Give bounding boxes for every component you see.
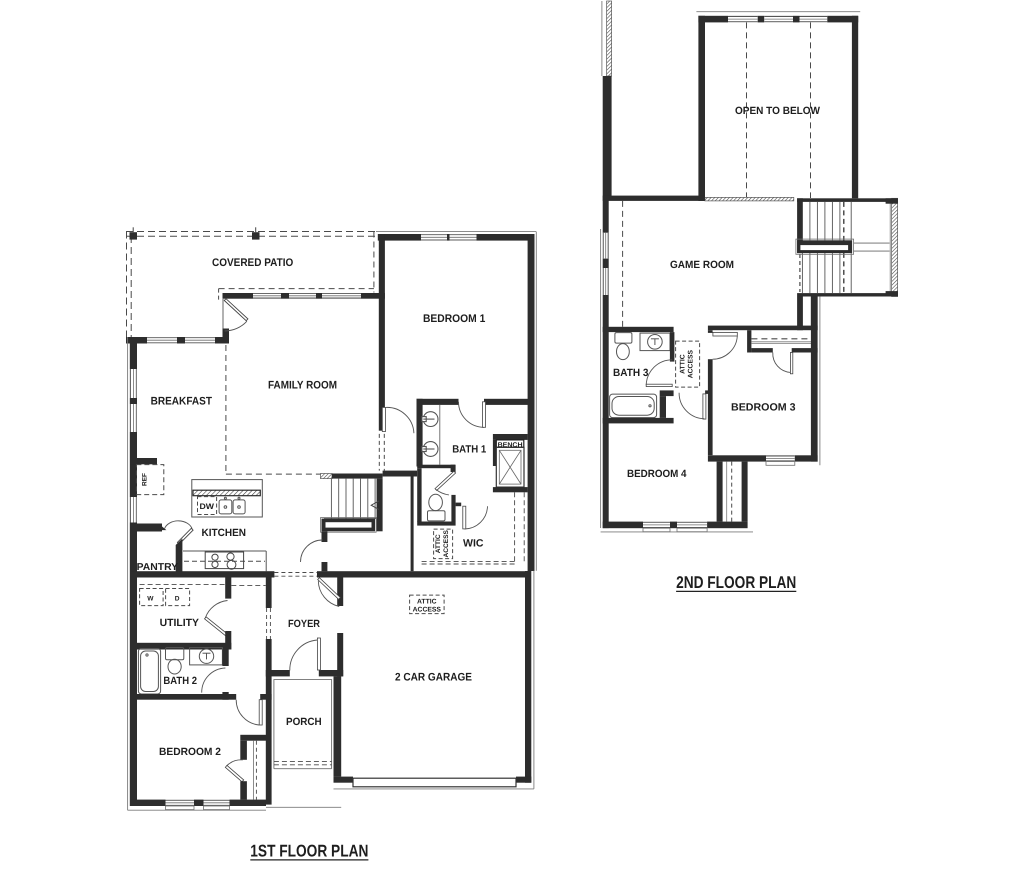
- svg-text:PORCH: PORCH: [286, 716, 322, 728]
- svg-text:BENCH: BENCH: [498, 442, 523, 449]
- svg-text:BREAKFAST: BREAKFAST: [151, 395, 213, 407]
- svg-text:W: W: [147, 595, 154, 602]
- svg-text:D: D: [175, 595, 180, 602]
- svg-text:BEDROOM 1: BEDROOM 1: [423, 313, 485, 325]
- svg-text:REF: REF: [142, 473, 149, 486]
- svg-text:FAMILY ROOM: FAMILY ROOM: [268, 380, 337, 392]
- svg-text:ATTIC: ATTIC: [679, 354, 686, 374]
- svg-text:ACCESS: ACCESS: [443, 529, 450, 557]
- svg-text:KITCHEN: KITCHEN: [202, 527, 247, 539]
- svg-text:2ND FLOOR PLAN: 2ND FLOOR PLAN: [676, 573, 796, 592]
- svg-text:BEDROOM 3: BEDROOM 3: [731, 401, 796, 413]
- svg-text:UTILITY: UTILITY: [160, 617, 199, 629]
- svg-text:GAME ROOM: GAME ROOM: [670, 259, 734, 271]
- svg-text:BEDROOM 2: BEDROOM 2: [159, 746, 221, 758]
- svg-text:2 CAR GARAGE: 2 CAR GARAGE: [395, 671, 472, 683]
- svg-text:ACCESS: ACCESS: [688, 349, 695, 378]
- svg-text:DW: DW: [200, 502, 215, 511]
- svg-text:OPEN TO BELOW: OPEN TO BELOW: [735, 105, 820, 117]
- svg-text:BATH 3: BATH 3: [613, 367, 649, 379]
- svg-text:ATTIC: ATTIC: [435, 534, 442, 553]
- svg-text:BEDROOM 4: BEDROOM 4: [627, 468, 687, 480]
- svg-text:1ST FLOOR PLAN: 1ST FLOOR PLAN: [250, 842, 368, 861]
- svg-text:WIC: WIC: [463, 537, 484, 549]
- svg-text:ACCESS: ACCESS: [413, 607, 442, 614]
- svg-text:COVERED PATIO: COVERED PATIO: [212, 257, 294, 269]
- svg-text:BATH 2: BATH 2: [163, 675, 197, 687]
- svg-text:FOYER: FOYER: [288, 618, 320, 630]
- svg-text:ATTIC: ATTIC: [417, 599, 437, 606]
- svg-text:BATH 1: BATH 1: [452, 443, 486, 455]
